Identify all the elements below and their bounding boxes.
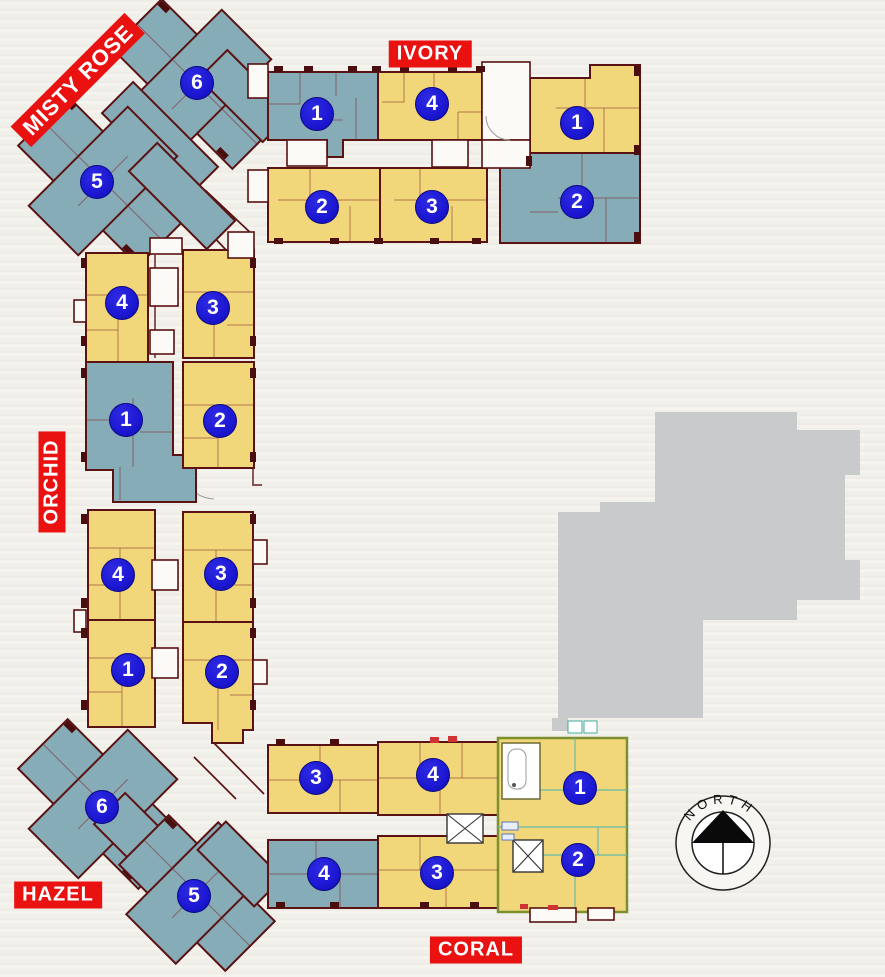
unit-badge-coral-3-bottom: 3 [420, 856, 454, 890]
floor-plan-svg: NORTH [0, 0, 885, 977]
wing-label-hazel: HAZEL [14, 882, 102, 909]
unit-badge-orchid-1-upper: 1 [109, 403, 143, 437]
unit-badge-coral-1: 1 [563, 771, 597, 805]
unit-badge-ivory-3: 3 [415, 190, 449, 224]
building-hazel [0, 694, 296, 977]
unit-badge-orchid-3-lower: 3 [204, 557, 238, 591]
unit-badge-orchid-3-upper: 3 [196, 291, 230, 325]
unit-badge-coral-3-top: 3 [299, 761, 333, 795]
unit-badge-coral-4-bottom: 4 [307, 857, 341, 891]
floor-plan-stage: NORTH MISTY ROSE IVORY ORCHID HAZEL CORA… [0, 0, 885, 977]
wing-label-orchid: ORCHID [39, 432, 66, 533]
wing-label-coral: CORAL [430, 937, 522, 964]
unit-badge-coral-2: 2 [561, 843, 595, 877]
unit-badge-ivory-2-left: 2 [305, 190, 339, 224]
unit-badge-misty-rose-5: 5 [80, 165, 114, 199]
unit-badge-ivory-1-right: 1 [560, 106, 594, 140]
unit-badge-hazel-5: 5 [177, 879, 211, 913]
gray-building-silhouette [558, 412, 860, 718]
unit-badge-ivory-4: 4 [415, 87, 449, 121]
wing-label-ivory: IVORY [389, 41, 472, 68]
unit-badge-coral-4-top: 4 [416, 758, 450, 792]
unit-badge-orchid-4-upper: 4 [105, 286, 139, 320]
north-compass: NORTH [676, 791, 770, 890]
unit-badge-misty-rose-6: 6 [180, 66, 214, 100]
unit-badge-orchid-1-lower: 1 [111, 653, 145, 687]
gray-annex [552, 718, 568, 731]
unit-badge-orchid-4-lower: 4 [101, 558, 135, 592]
unit-badge-orchid-2-upper: 2 [203, 404, 237, 438]
unit-badge-ivory-2-right: 2 [560, 185, 594, 219]
unit-badge-hazel-6: 6 [85, 790, 119, 824]
unit-badge-orchid-2-lower: 2 [205, 655, 239, 689]
unit-badge-ivory-1-left: 1 [300, 97, 334, 131]
